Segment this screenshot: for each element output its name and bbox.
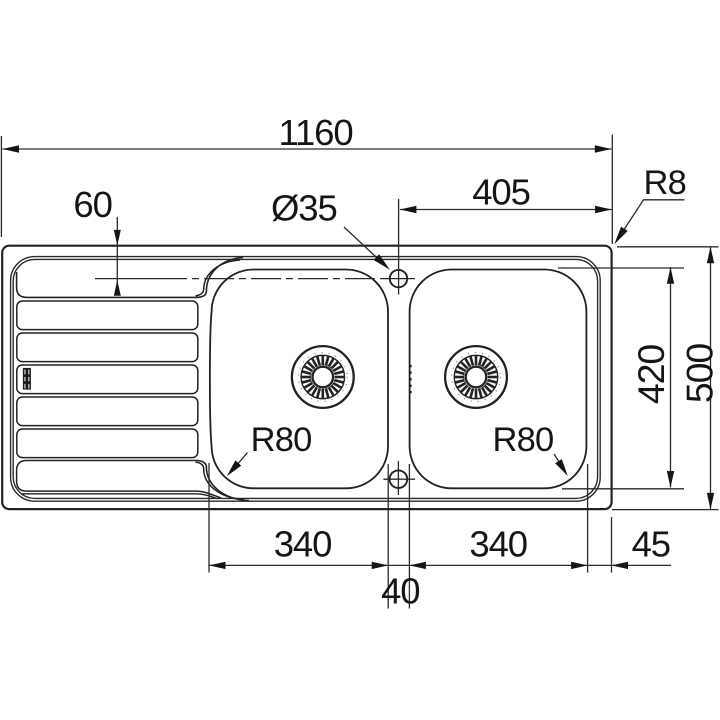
svg-text:420: 420 bbox=[630, 345, 672, 405]
svg-text:405: 405 bbox=[472, 172, 530, 213]
svg-text:40: 40 bbox=[381, 571, 419, 612]
svg-text:R80: R80 bbox=[493, 421, 554, 459]
svg-text:1160: 1160 bbox=[278, 112, 352, 153]
svg-text:340: 340 bbox=[274, 524, 332, 565]
svg-text:R80: R80 bbox=[251, 421, 312, 459]
svg-text:340: 340 bbox=[469, 524, 527, 565]
svg-text:Ø35: Ø35 bbox=[271, 187, 337, 228]
svg-text:60: 60 bbox=[73, 184, 111, 225]
svg-text:45: 45 bbox=[632, 524, 670, 565]
svg-text:R8: R8 bbox=[644, 164, 687, 202]
svg-text:500: 500 bbox=[679, 344, 720, 404]
